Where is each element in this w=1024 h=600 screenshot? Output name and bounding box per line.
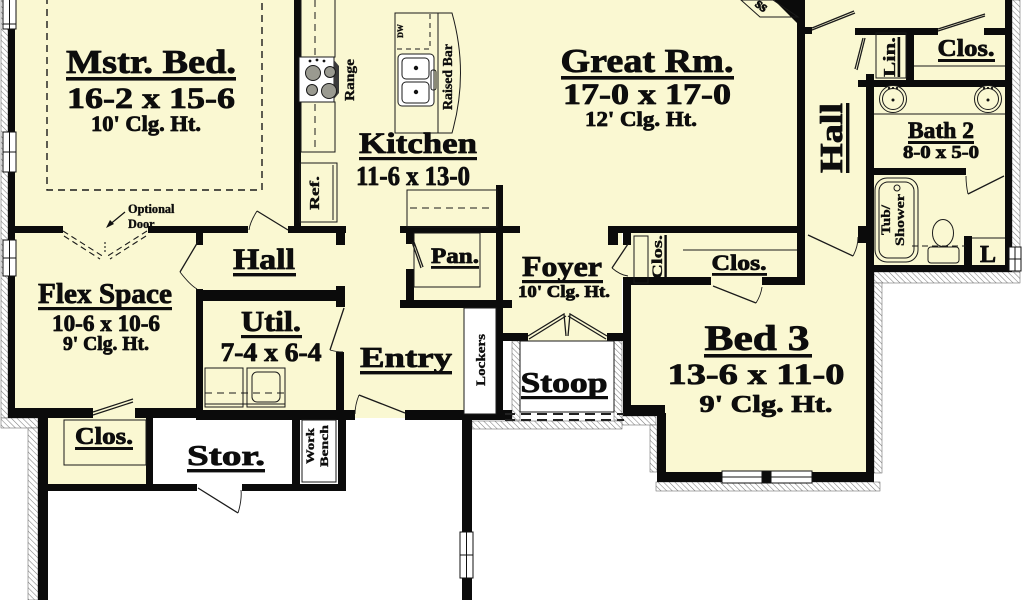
svg-text:Bath 2: Bath 2 — [908, 118, 974, 143]
svg-text:Ref.: Ref. — [308, 176, 323, 210]
svg-text:Range: Range — [343, 59, 358, 101]
svg-text:Clos.: Clos. — [938, 36, 995, 62]
svg-text:Clos.: Clos. — [712, 250, 767, 275]
svg-text:Flex Space: Flex Space — [38, 279, 172, 310]
svg-text:Door: Door — [128, 217, 155, 231]
svg-text:Raised Bar: Raised Bar — [441, 44, 456, 110]
svg-text:10' Clg. Ht.: 10' Clg. Ht. — [91, 111, 201, 136]
svg-text:Work: Work — [303, 428, 317, 464]
svg-text:9' Clg. Ht.: 9' Clg. Ht. — [63, 333, 149, 355]
svg-text:Lockers: Lockers — [474, 334, 488, 386]
svg-text:Bed 3: Bed 3 — [705, 318, 810, 358]
svg-text:L: L — [980, 242, 996, 268]
svg-text:Kitchen: Kitchen — [359, 127, 477, 160]
svg-text:Pan.: Pan. — [431, 243, 479, 268]
svg-text:Hall: Hall — [233, 243, 295, 276]
svg-text:Tub/: Tub/ — [878, 205, 893, 235]
svg-text:9' Clg. Ht.: 9' Clg. Ht. — [700, 392, 833, 418]
svg-text:DW: DW — [396, 24, 405, 38]
svg-text:7-4 x 6-4: 7-4 x 6-4 — [221, 338, 322, 367]
svg-text:Great Rm.: Great Rm. — [561, 43, 734, 80]
svg-text:Mstr. Bed.: Mstr. Bed. — [66, 44, 236, 81]
svg-text:8-0 x 5-0: 8-0 x 5-0 — [903, 142, 979, 162]
svg-text:Foyer: Foyer — [522, 251, 602, 283]
svg-text:13-6 x 11-0: 13-6 x 11-0 — [668, 358, 845, 391]
svg-text:Clos.: Clos. — [650, 235, 666, 279]
svg-text:Stoop: Stoop — [521, 368, 608, 399]
svg-text:Stor.: Stor. — [187, 440, 265, 472]
svg-text:Entry: Entry — [360, 342, 453, 374]
svg-text:Bench: Bench — [317, 425, 331, 467]
svg-text:Hall: Hall — [813, 103, 849, 173]
svg-text:12' Clg. Ht.: 12' Clg. Ht. — [585, 107, 697, 131]
svg-text:Shower: Shower — [892, 194, 907, 246]
svg-text:Optional: Optional — [128, 202, 175, 216]
svg-text:Clos.: Clos. — [75, 424, 133, 450]
svg-text:Util.: Util. — [241, 307, 301, 338]
svg-text:11-6 x 13-0: 11-6 x 13-0 — [356, 161, 470, 191]
svg-text:10' Clg. Ht.: 10' Clg. Ht. — [518, 282, 610, 301]
svg-text:Lin.: Lin. — [880, 37, 899, 77]
